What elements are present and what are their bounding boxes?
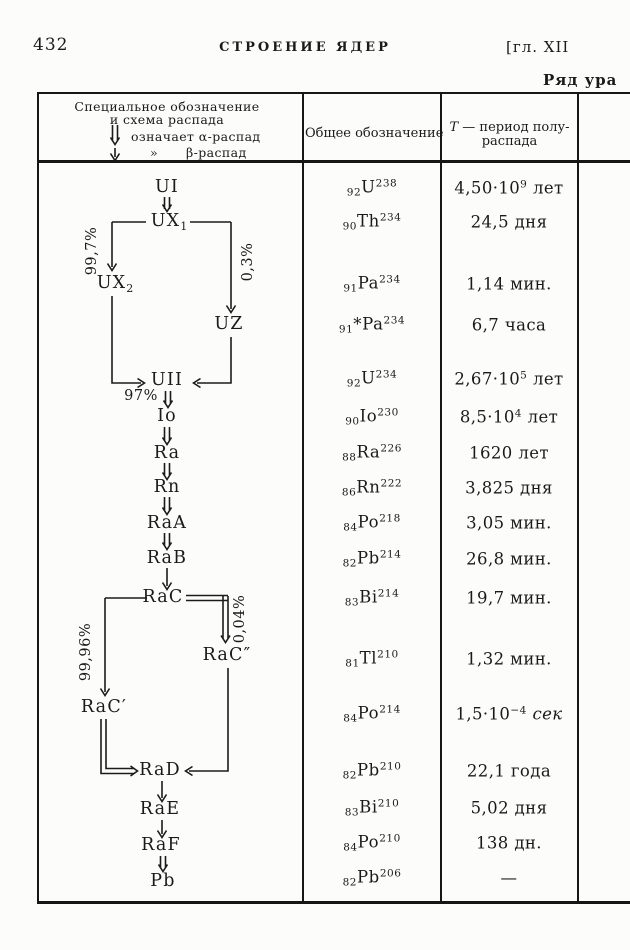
decay-node: RaB [147, 548, 187, 570]
halflife-cell: 6,7 часа [441, 316, 577, 335]
element-symbol: Io [360, 407, 378, 426]
halflife-cell: 19,7 мин. [441, 589, 577, 608]
decay-node: RaA [147, 513, 187, 535]
element-symbol: U [361, 369, 376, 388]
branch-percent-9996: 99,96% [78, 623, 94, 681]
element-symbol: Po [358, 833, 380, 852]
beta-decay-arrow [194, 337, 232, 388]
alpha-decay-arrow [101, 719, 138, 776]
beta-arrow-icon [111, 148, 120, 161]
alpha-decay-arrow [163, 197, 172, 212]
isotope-cell: 84Po218 [303, 513, 441, 534]
decay-node: UII [151, 370, 183, 392]
atomic-number: 84 [343, 713, 357, 725]
mass-number: 206 [380, 868, 402, 880]
table-border-left [37, 92, 39, 904]
halflife-cell: 1,14 мин. [441, 275, 577, 294]
isotope-cell: 88Ra226 [303, 443, 441, 464]
atomic-number: 82 [343, 770, 357, 782]
isotope-cell: 91*Pa234 [303, 315, 441, 336]
atomic-number: 92 [347, 187, 361, 199]
element-symbol: Pa [358, 274, 379, 293]
element-symbol: Pb [357, 868, 380, 887]
col2-header: Общее обозначение [305, 126, 440, 141]
alpha-decay-arrow [163, 497, 172, 515]
element-symbol: Po [358, 513, 380, 532]
element-symbol: Pb [357, 549, 380, 568]
mass-number: 210 [380, 761, 402, 773]
ditto-mark: » [150, 145, 158, 160]
element-symbol: Ra [356, 443, 380, 462]
halflife-cell: 1,5·10−4 сек [441, 705, 577, 724]
isotope-cell: 82Pb206 [303, 868, 441, 889]
atomic-number: 91 [343, 283, 357, 295]
element-symbol: U [361, 178, 376, 197]
halflife-cell: 26,8 мин. [441, 550, 577, 569]
page-number: 432 [33, 35, 68, 55]
mass-number: 238 [376, 178, 398, 190]
chapter-label: [гл. XII [506, 38, 569, 56]
alpha-decay-arrow [159, 856, 168, 872]
halflife-cell: 1,32 мин. [441, 650, 577, 669]
isotope-cell: 82Pb210 [303, 761, 441, 782]
element-symbol: Tl [360, 649, 377, 668]
halflife-cell: 4,50·109 лет [441, 179, 577, 198]
element-symbol: Rn [356, 478, 380, 497]
halflife-cell: 138 дн. [441, 834, 577, 853]
isotope-cell: 84Po214 [303, 704, 441, 725]
isotope-cell: 86Rn222 [303, 478, 441, 499]
mass-number: 234 [384, 315, 406, 327]
atomic-number: 82 [343, 877, 357, 889]
decay-node: RaC″ [203, 645, 252, 667]
atomic-number: 84 [343, 842, 357, 854]
halflife-cell: 5,02 дня [441, 799, 577, 818]
series-title: Ряд ура [543, 71, 617, 89]
table-divider-3 [577, 92, 579, 904]
element-symbol: *Pa [353, 315, 383, 334]
decay-node: Rn [154, 477, 181, 499]
branch-percent-997: 99,7% [84, 227, 100, 276]
mass-number: 214 [380, 549, 402, 561]
table-rule-header [37, 160, 630, 163]
halflife-cell: 3,05 мин. [441, 514, 577, 533]
beta-legend-text: β-распад [186, 145, 247, 160]
branch-percent-004: 0,04% [232, 595, 248, 644]
col3-header-line1: T — период полу- [443, 120, 576, 135]
mass-number: 210 [378, 798, 400, 810]
decay-node: RaC [142, 587, 183, 609]
alpha-legend-text: означает α-распад [131, 129, 261, 144]
halflife-cell: — [441, 869, 577, 888]
halflife-cell: 22,1 года [441, 762, 577, 781]
mass-number: 234 [379, 274, 401, 286]
alpha-arrow-icon [111, 125, 120, 145]
mass-number: 218 [379, 513, 401, 525]
alpha-decay-arrow [186, 596, 230, 643]
mass-number: 234 [380, 212, 402, 224]
col3-header-line2: распада [443, 134, 576, 149]
mass-number: 234 [376, 369, 398, 381]
element-symbol: Bi [359, 798, 378, 817]
atomic-number: 88 [342, 452, 356, 464]
col1-header-line2: и схема распада [58, 112, 276, 127]
exponent: −4 [510, 705, 526, 717]
atomic-number: 81 [345, 658, 359, 670]
decay-node: Pb [150, 871, 175, 893]
isotope-cell: 90Th234 [303, 212, 441, 233]
book-page: 432 СТРОЕНИЕ ЯДЕР [гл. XII Ряд ура Специ… [0, 0, 630, 950]
decay-node: UZ [214, 314, 243, 336]
decay-node: RaE [140, 799, 180, 821]
halflife-cell: 3,825 дня [441, 479, 577, 498]
isotope-cell: 92U234 [303, 369, 441, 390]
atomic-number: 86 [342, 487, 356, 499]
beta-decay-arrow [186, 668, 229, 776]
halflife-cell: 8,5·104 лет [441, 408, 577, 427]
halflife-cell: 1620 лет [441, 444, 577, 463]
mass-number: 226 [380, 443, 402, 455]
beta-decay-arrow [227, 222, 236, 313]
isotope-cell: 84Po210 [303, 833, 441, 854]
isotope-cell: 82Pb214 [303, 549, 441, 570]
atomic-number: 83 [345, 807, 359, 819]
isotope-cell: 91Pa234 [303, 274, 441, 295]
beta-decay-arrow [108, 222, 117, 271]
beta-decay-arrow [112, 296, 145, 388]
decay-node: Ra [154, 443, 180, 465]
halflife-cell: 24,5 дня [441, 213, 577, 232]
isotope-cell: 92U238 [303, 178, 441, 199]
atomic-number: 83 [345, 597, 359, 609]
decay-node: Io [157, 406, 177, 428]
atomic-number: 84 [343, 522, 357, 534]
mass-number: 210 [377, 649, 399, 661]
isotope-cell: 90Io230 [303, 407, 441, 428]
element-symbol: Th [357, 212, 380, 231]
mass-number: 214 [379, 704, 401, 716]
branch-percent-03: 0,3% [240, 243, 256, 282]
atomic-number: 90 [343, 221, 357, 233]
isotope-cell: 83Bi210 [303, 798, 441, 819]
decay-node: RaC′ [81, 697, 127, 719]
node-subscript: 1 [180, 220, 187, 233]
table-rule-bottom [37, 901, 630, 904]
table-rule-top [37, 92, 630, 94]
exponent: 4 [515, 408, 522, 420]
mass-number: 230 [377, 407, 399, 419]
alpha-decay-arrow [163, 427, 172, 445]
halflife-cell: 2,67·105 лет [441, 370, 577, 389]
decay-node: UX2 [97, 273, 134, 295]
isotope-cell: 81Tl210 [303, 649, 441, 670]
atomic-number: 91 [339, 324, 353, 336]
element-symbol: Po [358, 704, 380, 723]
decay-node: RaD [139, 760, 181, 782]
beta-decay-arrow [101, 598, 148, 696]
mass-number: 214 [378, 588, 400, 600]
mass-number: 222 [381, 478, 403, 490]
running-title: СТРОЕНИЕ ЯДЕР [165, 40, 445, 55]
element-symbol: Pb [357, 761, 380, 780]
decay-node: RaF [141, 835, 181, 857]
atomic-number: 92 [347, 378, 361, 390]
atomic-number: 82 [343, 558, 357, 570]
element-symbol: Bi [359, 588, 378, 607]
mass-number: 210 [379, 833, 401, 845]
halflife-symbol: T [449, 120, 458, 135]
isotope-cell: 83Bi214 [303, 588, 441, 609]
node-subscript: 2 [126, 282, 133, 295]
atomic-number: 90 [345, 416, 359, 428]
decay-node: UI [155, 177, 179, 199]
decay-node: UX1 [151, 211, 188, 233]
